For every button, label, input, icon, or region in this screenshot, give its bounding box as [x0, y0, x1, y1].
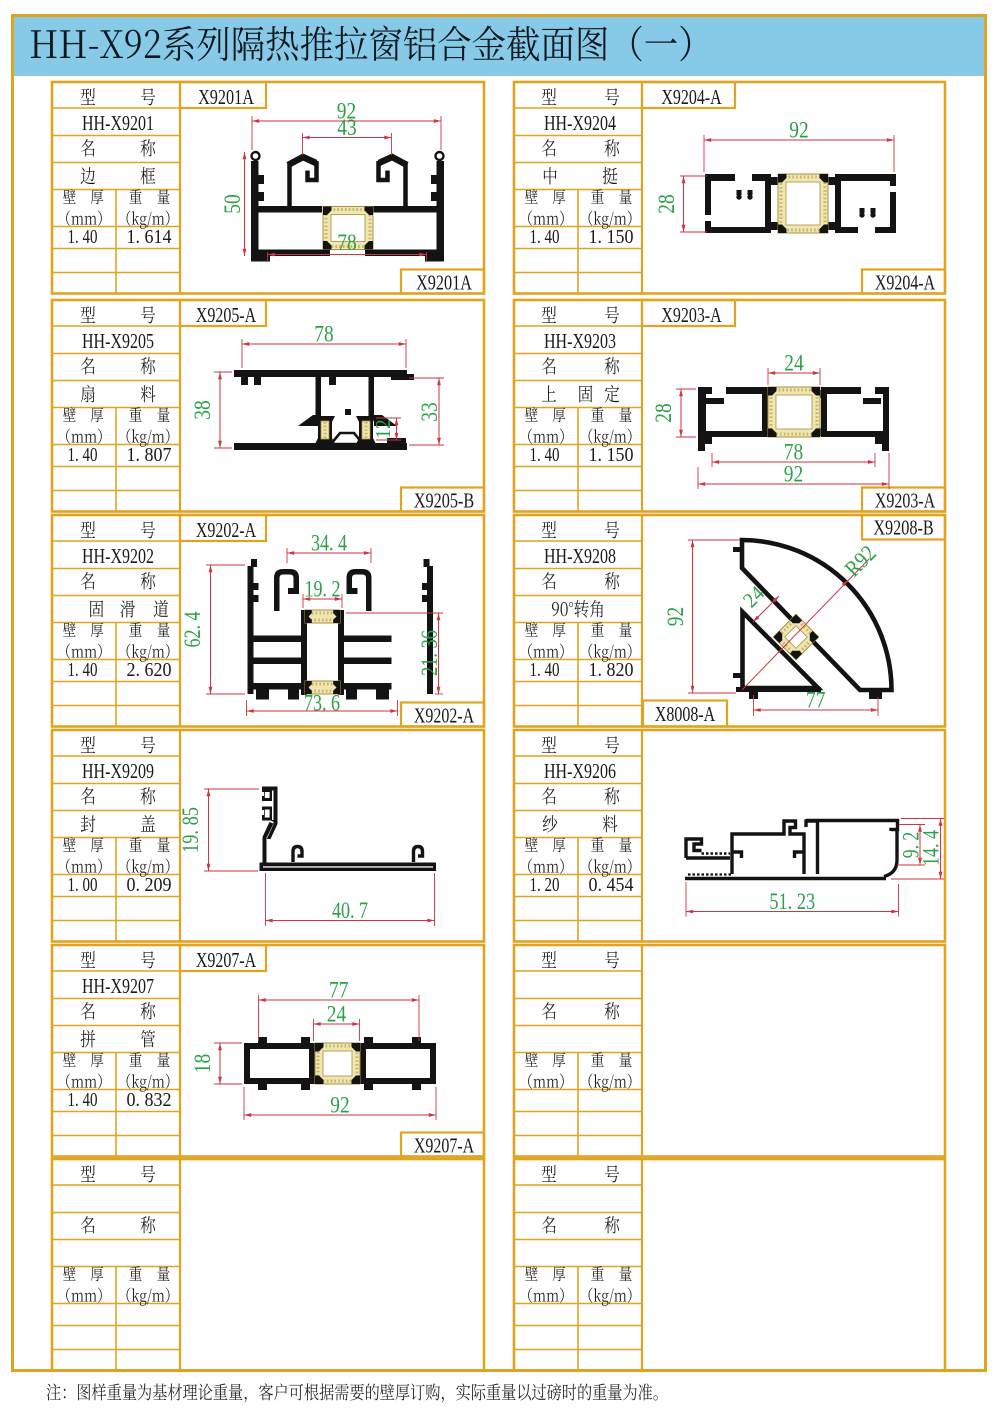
svg-text:1. 40: 1. 40 — [530, 445, 560, 466]
svg-text:HH-X9202: HH-X9202 — [82, 544, 154, 568]
svg-text:HH-X9203: HH-X9203 — [544, 329, 616, 353]
svg-text:51. 23: 51. 23 — [769, 889, 815, 914]
svg-text:1. 820: 1. 820 — [589, 660, 634, 681]
svg-text:HH-X9204: HH-X9204 — [544, 111, 616, 135]
svg-text:28: 28 — [654, 194, 679, 213]
svg-text:40. 7: 40. 7 — [332, 898, 368, 923]
svg-text:12: 12 — [371, 419, 395, 438]
svg-text:92: 92 — [330, 1093, 349, 1118]
svg-text:92: 92 — [663, 607, 688, 626]
svg-text:X9204-A: X9204-A — [661, 85, 722, 109]
svg-text:2. 620: 2. 620 — [127, 660, 172, 681]
svg-text:19. 2: 19. 2 — [304, 577, 340, 602]
svg-text:73. 6: 73. 6 — [304, 691, 340, 716]
svg-text:92: 92 — [784, 462, 803, 487]
svg-text:24: 24 — [784, 351, 804, 376]
svg-text:X9203-A: X9203-A — [661, 303, 722, 327]
svg-text:X9203-A: X9203-A — [875, 489, 936, 513]
svg-text:18: 18 — [190, 1054, 215, 1073]
svg-text:1. 00: 1. 00 — [68, 875, 98, 896]
svg-text:1. 40: 1. 40 — [68, 1090, 98, 1111]
svg-text:1. 150: 1. 150 — [589, 227, 634, 248]
svg-text:HH-X9205: HH-X9205 — [82, 329, 154, 353]
svg-text:77: 77 — [329, 978, 348, 1003]
svg-text:HH-X9207: HH-X9207 — [82, 974, 154, 998]
svg-text:77: 77 — [806, 688, 825, 713]
svg-text:HH-X9208: HH-X9208 — [544, 544, 616, 568]
svg-text:78: 78 — [337, 230, 356, 255]
svg-text:34. 4: 34. 4 — [311, 531, 347, 556]
svg-text:X9201A: X9201A — [198, 85, 254, 109]
svg-text:X9202-A: X9202-A — [414, 704, 475, 728]
svg-text:14. 4: 14. 4 — [919, 830, 944, 866]
svg-text:X9205-A: X9205-A — [196, 303, 257, 327]
svg-text:1. 40: 1. 40 — [68, 660, 98, 681]
svg-text:X9208-B: X9208-B — [873, 516, 933, 540]
svg-text:1. 807: 1. 807 — [127, 445, 172, 466]
svg-text:43: 43 — [337, 115, 356, 140]
svg-text:1. 20: 1. 20 — [530, 875, 560, 896]
svg-text:HH-X9209: HH-X9209 — [82, 759, 154, 783]
svg-text:X8008-A: X8008-A — [655, 702, 716, 726]
svg-text:1. 614: 1. 614 — [127, 227, 172, 248]
svg-text:X9207-A: X9207-A — [414, 1134, 475, 1158]
svg-text:62. 4: 62. 4 — [180, 611, 205, 647]
svg-text:X9204-A: X9204-A — [875, 271, 936, 295]
svg-text:X9205-B: X9205-B — [414, 489, 474, 513]
svg-text:28: 28 — [651, 403, 676, 422]
svg-text:50: 50 — [220, 194, 245, 213]
svg-text:19. 85: 19. 85 — [178, 807, 203, 853]
svg-text:1. 150: 1. 150 — [589, 445, 634, 466]
svg-text:1. 40: 1. 40 — [68, 445, 98, 466]
svg-text:X9207-A: X9207-A — [196, 948, 257, 972]
svg-text:92: 92 — [789, 118, 808, 143]
svg-text:21. 36: 21. 36 — [417, 630, 442, 676]
svg-text:HH-X9201: HH-X9201 — [82, 111, 154, 135]
svg-text:1. 40: 1. 40 — [530, 227, 560, 248]
svg-text:0. 454: 0. 454 — [589, 875, 634, 896]
svg-text:38: 38 — [190, 400, 215, 419]
svg-text:0. 832: 0. 832 — [127, 1090, 172, 1111]
svg-text:78: 78 — [314, 322, 333, 347]
svg-text:0. 209: 0. 209 — [127, 875, 172, 896]
svg-text:24: 24 — [327, 1002, 347, 1027]
svg-text:HH-X9206: HH-X9206 — [544, 759, 616, 783]
svg-text:33: 33 — [417, 402, 442, 421]
svg-text:X9201A: X9201A — [416, 271, 472, 295]
svg-text:1. 40: 1. 40 — [68, 227, 98, 248]
svg-text:1. 40: 1. 40 — [530, 660, 560, 681]
svg-text:X9202-A: X9202-A — [196, 518, 257, 542]
